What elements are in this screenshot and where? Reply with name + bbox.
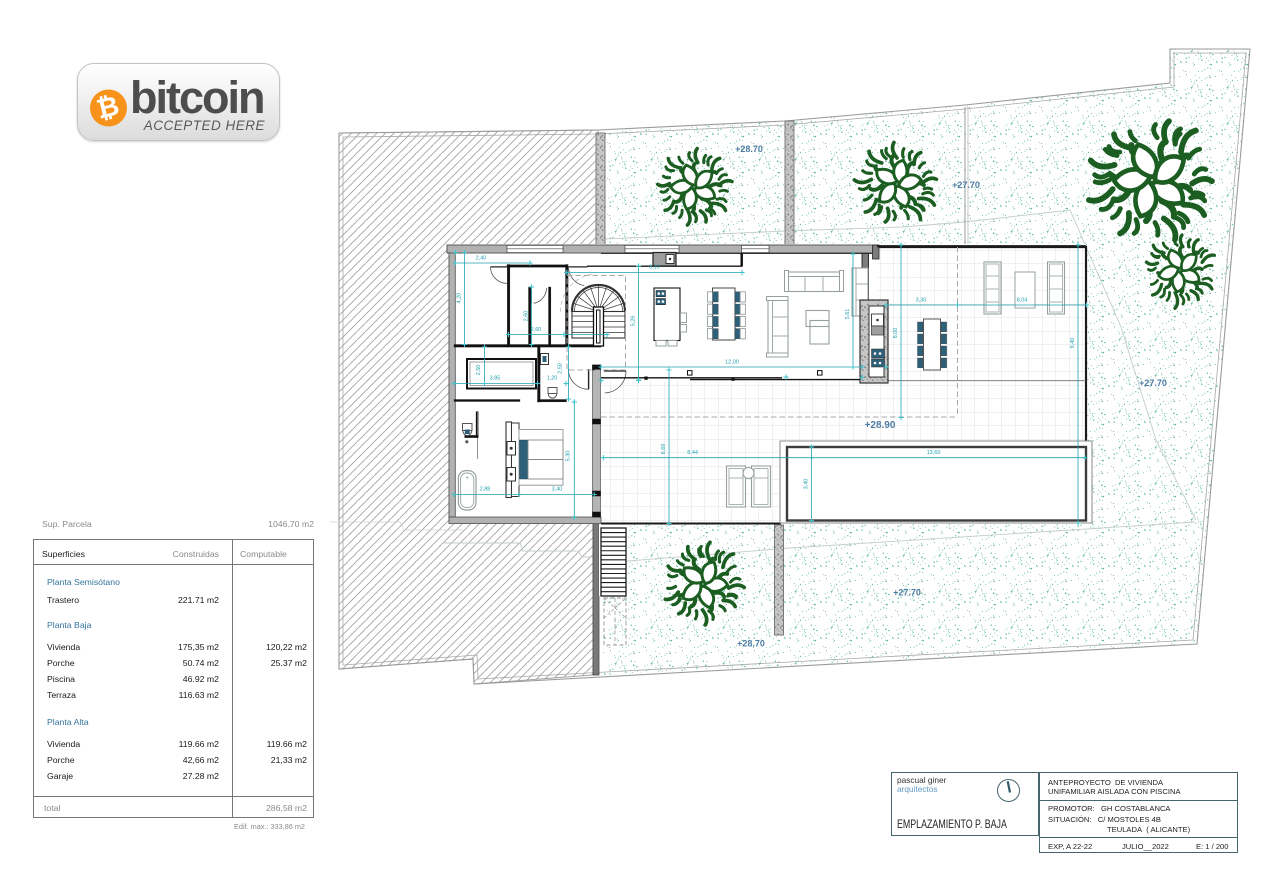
- svg-text:+28.90: +28.90: [865, 420, 896, 431]
- svg-text:3,40: 3,40: [552, 487, 563, 493]
- svg-text:2,60: 2,60: [524, 311, 530, 322]
- svg-text:8,00: 8,00: [893, 328, 899, 339]
- svg-text:2,40: 2,40: [476, 256, 487, 262]
- svg-text:4,20: 4,20: [457, 293, 463, 304]
- svg-text:3,40: 3,40: [804, 479, 810, 490]
- svg-text:+27.70: +27.70: [952, 180, 980, 190]
- svg-text:+27.70: +27.70: [1139, 378, 1167, 388]
- svg-text:2,50: 2,50: [558, 363, 564, 374]
- svg-text:2,50: 2,50: [476, 365, 482, 376]
- svg-text:3,30: 3,30: [916, 298, 927, 304]
- svg-text:9,40: 9,40: [1070, 338, 1076, 349]
- svg-text:8,44: 8,44: [687, 450, 698, 456]
- svg-text:5,61: 5,61: [845, 309, 851, 320]
- svg-text:+28.70: +28.70: [735, 144, 763, 154]
- svg-text:+27.70: +27.70: [893, 588, 921, 598]
- svg-text:3,85: 3,85: [490, 376, 501, 382]
- svg-text:1,20: 1,20: [547, 376, 558, 382]
- svg-text:13,60: 13,60: [927, 450, 941, 456]
- svg-text:6,69: 6,69: [661, 444, 667, 455]
- svg-text:5,30: 5,30: [566, 451, 572, 462]
- svg-text:2,88: 2,88: [480, 487, 491, 493]
- svg-text:12,00: 12,00: [725, 360, 739, 366]
- svg-text:8,04: 8,04: [1017, 298, 1028, 304]
- svg-text:8,10: 8,10: [649, 265, 660, 271]
- svg-text:2,60: 2,60: [531, 327, 542, 333]
- svg-text:+28.70: +28.70: [737, 639, 765, 649]
- svg-text:5,26: 5,26: [631, 316, 637, 327]
